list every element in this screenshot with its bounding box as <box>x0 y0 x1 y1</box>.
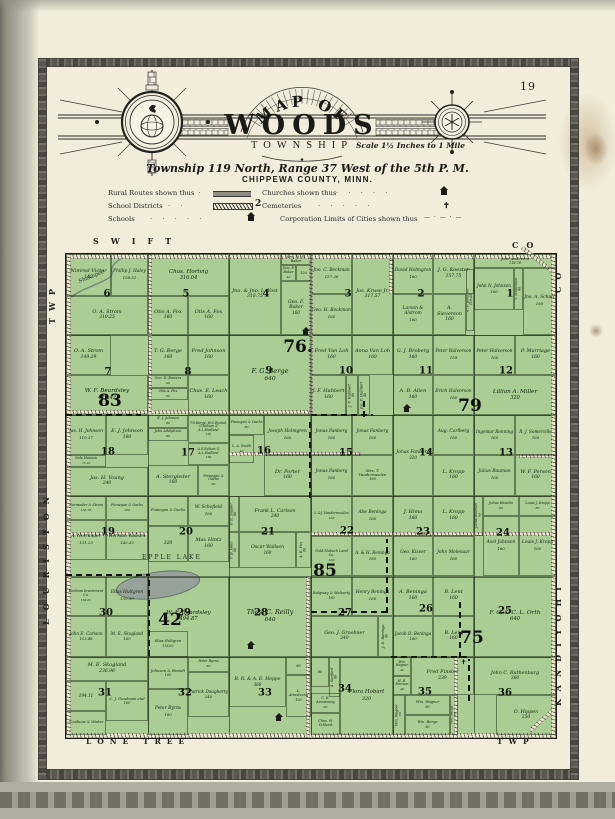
parcel: Chas. W. Schlevit <box>311 713 340 735</box>
parcel-owner: G. J. Broberg <box>397 349 430 355</box>
parcel-acres: 160 <box>369 557 376 561</box>
parcel-acres: 160 <box>124 509 130 512</box>
parcel-owner: R. J. Somerville <box>519 430 552 435</box>
parcel-owner: Chas. Hortvig <box>169 269 208 275</box>
parcel-acres: 160 <box>369 517 377 521</box>
parcel-owner: R. R. & A. E. Hoppe <box>234 677 280 682</box>
parcel: Jas. H. Young240 <box>66 467 148 496</box>
parcel-acres: 80 <box>399 713 402 717</box>
section-number: 23 <box>416 527 430 538</box>
parcel: Max Hintz160 <box>188 526 229 562</box>
school-district-number: 85 <box>313 561 337 581</box>
parcel: Johnson & Brandt160 <box>148 657 188 689</box>
parcel-acres: 160 <box>532 436 539 440</box>
parcel-owner: E. J. Johnson <box>111 429 143 435</box>
parcel: Wm. Wagner40 <box>393 657 411 676</box>
parcel-owner: A. & H. Beninga <box>355 551 390 556</box>
parcel-acres: 160 <box>329 517 335 520</box>
legend-schools-label: Schools <box>108 215 135 223</box>
school-district-symbol <box>213 203 253 210</box>
parcel-acres: 118.78 <box>509 262 521 266</box>
parcel-acres: 160 <box>328 597 334 601</box>
parcel-acres: 160 <box>536 302 544 306</box>
church-icon <box>303 331 308 335</box>
neighbor-township-west: LOURISTON <box>41 443 51 671</box>
parcel-owner: Frank L. Carlson <box>254 509 295 514</box>
parcel-owner: Larson & Alstrom <box>394 307 432 317</box>
parcel-acres: 119.37 <box>79 436 93 440</box>
parcel-acres: 160 <box>206 456 212 459</box>
section-number: 8 <box>185 367 192 378</box>
photo-edge-bottom <box>0 782 615 819</box>
parcel-acres: 40 <box>287 276 291 279</box>
parcel-owner: A. Beninga <box>399 590 427 596</box>
parcel: L. Kropp160 <box>433 455 474 496</box>
school-district-number: 76. <box>283 337 313 357</box>
parcel: J. F. Hubbert80 <box>346 375 358 415</box>
parcel: Henry Beninga160 <box>352 576 393 616</box>
parcel-owner: John E. Carlson <box>69 632 102 637</box>
parcel-acres: 143.32 <box>120 541 134 545</box>
parcel-acres: 320 <box>362 697 371 702</box>
parcel: Chas. E. Leach160 <box>188 375 229 415</box>
legend-rural-routes-label: Rural Routes shown thus <box>108 189 194 197</box>
parcel-acres: 160 <box>491 356 499 360</box>
parcel-owner: Chas. E. Leach <box>190 389 228 395</box>
parcel: 120 <box>296 265 311 281</box>
parcel: O. Hippen250 <box>496 695 556 735</box>
parcel-acres: 160 <box>284 436 292 440</box>
township-title: WOODS <box>150 110 454 141</box>
parcel-acres: 40 <box>400 669 404 672</box>
parcel-acres: 250 <box>522 716 530 721</box>
parcel: Jas. H. Johnson119.37 <box>66 415 106 455</box>
parcel-acres: 160 <box>449 637 458 642</box>
parcel-acres: 160 <box>449 597 458 602</box>
parcel-acres: 80 <box>454 713 457 717</box>
parcel-acres: 240 <box>205 695 212 699</box>
parcel: L. Armstrong160 <box>286 675 311 717</box>
parcel-acres: 316.04 <box>180 276 198 282</box>
parcel-owner: Patrick Dougherty <box>189 690 228 695</box>
school-district-number: 79 <box>458 396 482 416</box>
parcel: Geo. J. Groebner240 <box>311 616 378 657</box>
rural-route-symbol <box>213 191 251 197</box>
section-number: 31 <box>98 688 112 699</box>
parcel: Abe Beninga160 <box>352 496 393 536</box>
parcel-owner: A. Sieverson <box>434 306 465 317</box>
parcel: Dr. Porter160 <box>264 455 311 496</box>
parcel-acres: 80 <box>245 426 249 429</box>
parcel-acres: 160 <box>531 356 540 361</box>
parcel-owner: P. Marriage <box>521 349 550 355</box>
parcel-acres: 80 <box>479 514 482 518</box>
section-number: 13 <box>499 448 513 459</box>
parcel-acres: 160 <box>328 476 336 480</box>
parcel-acres: 160 <box>368 356 377 361</box>
parcel-owner: Lillian A. Miller <box>493 389 537 395</box>
parcel-owner: Fred Van Loh <box>314 349 348 355</box>
parcel: Jos. Kruse Jr.317.57 <box>352 254 393 335</box>
parcel: R. J. Somerville160 <box>515 415 556 455</box>
parcel: P. B. Hein80 <box>229 532 239 568</box>
neighbor-twp-west-label: TWP <box>47 272 57 334</box>
parcel-acres: 160 <box>164 713 172 717</box>
parcel-acres: 136.76 <box>81 509 92 512</box>
parcel: O. A. Strom310.25 <box>66 296 148 335</box>
county-line: CHIPPEWA COUNTY, MINN. <box>60 175 555 184</box>
parcel: Joseph Holmgren160 <box>264 415 311 455</box>
parcel-owner: John C. Ruthenburg <box>491 671 539 676</box>
parcel-acres: 160 <box>497 547 505 551</box>
parcel-acres: 160 <box>205 512 213 516</box>
parcel-acres: 160 <box>324 396 333 401</box>
parcel-acres: 194.11 <box>79 694 93 699</box>
parcel-acres: 80 <box>335 674 339 678</box>
parcel: Otis A. Fox80 <box>148 388 188 400</box>
section-number: 10 <box>339 366 353 377</box>
parcel-acres: 160 <box>169 481 178 486</box>
parcel-owner: T. G. Berge <box>154 349 182 355</box>
legend-cemeteries-label: Cemeteries <box>262 202 301 210</box>
parcel-owner: Jacob D. Beninga <box>395 632 431 637</box>
parcel-acres: 40 <box>519 286 523 290</box>
section-number: 33 <box>258 688 272 699</box>
parcel-owner: Benham Investment Co. <box>67 590 105 597</box>
parcel: Otis A. Fox160 <box>188 296 229 335</box>
section-number: 14 <box>419 448 433 459</box>
parcel-acres: 160 <box>369 478 376 482</box>
parcel-acres: 160 <box>449 476 458 481</box>
township-map: Shakopee EPPLE LAKE Nimrod Victor142Phil… <box>65 253 557 739</box>
parcel-acres: 160 <box>450 396 458 400</box>
parcel-acres: 160 <box>490 290 497 294</box>
school-district-number: 83 <box>98 391 122 411</box>
parcel-owner: Ingemar Ronning <box>476 430 513 435</box>
parcel-acres: 240 <box>103 482 112 487</box>
parcel: Thos. C. Reilly640 <box>229 576 311 657</box>
section-number: 21 <box>261 527 275 538</box>
parcel-acres: 160 <box>409 396 418 401</box>
parcel: Peter Byrns80 <box>188 657 229 672</box>
parcel: A. Norrander131.23 <box>66 520 106 560</box>
parcel-owner: T.G.Berge, H.C.Rystad, G.Nelson & A.L.He… <box>189 422 228 433</box>
legend-corporation-label: Corporation Limits of Cities shown thus <box>280 215 418 223</box>
parcel: T. G. Berge160 <box>148 335 188 375</box>
parcel: A. E. Fox80 <box>296 532 311 568</box>
parcel-acres: 80 <box>352 392 356 396</box>
parcel-owner: A. B. Allen <box>400 389 427 395</box>
parcel-acres: 160 <box>409 356 418 361</box>
parcel: 80 <box>286 657 311 675</box>
parcel: Aug. Carlberg160 <box>433 415 474 455</box>
parcel: Wm. Berge80 <box>405 715 450 735</box>
parcel-acres: 160 <box>369 436 377 440</box>
parcel: M. E. Skogland160 <box>106 616 148 657</box>
parcel-acres: 160 <box>491 436 498 440</box>
map-scale: Scale 1½ Inches to 1 Mile <box>356 141 465 150</box>
section-number: 16 <box>257 446 271 457</box>
school-district-number: 42 <box>158 610 182 630</box>
parcel: Jno. & Jno. L. Yost318.75 <box>229 254 281 335</box>
parcel-acres: 118.62 <box>162 645 173 649</box>
parcel-acres: 236.96 <box>99 670 115 675</box>
section-number: 22 <box>340 526 354 537</box>
parcel-acres: 80 <box>499 507 503 510</box>
corporation-limits-symbol: — · — · — <box>424 214 462 221</box>
parcel-acres: 40 <box>240 450 244 453</box>
parcel-acres: 160 <box>450 436 458 440</box>
parcel-acres: 160 <box>164 356 173 361</box>
parcel: Mrs. M. M. Baker <box>281 254 311 265</box>
scanned-plat-page: { "colors":{"page":"#f1edda","map_green"… <box>0 0 615 819</box>
section-number: 18 <box>101 447 115 458</box>
parcel-owner: C. E. Armstrong <box>312 697 339 704</box>
parcel: E. J. Johnson80 <box>148 415 188 428</box>
parcel-owner: Goodnow & Winter <box>69 721 104 725</box>
parcel-acres: 160 <box>283 476 292 481</box>
parcel-acres: 160 <box>369 597 377 601</box>
parcel-acres: 80 <box>304 547 308 551</box>
church-icon <box>276 717 281 721</box>
parcel-acres: 160 <box>123 436 132 441</box>
parcel: Geo. D. Bowers40 <box>148 375 188 388</box>
legend-leader: · · <box>168 202 186 210</box>
school-district-symbol-number: 2 <box>255 199 261 209</box>
parcel-acres: 40 <box>166 382 170 385</box>
parcel-acres: 40 <box>364 392 368 396</box>
parcel-acres: 160 <box>409 557 417 561</box>
parcel: Mrs. T. Vandermeulen160 <box>352 455 393 496</box>
parcel: John C. Ruthenburg360 <box>474 657 556 695</box>
parcel-acres: 318.75 <box>247 295 263 300</box>
parcel-acres: 317.57 <box>365 295 381 300</box>
parcel: F. E. Snyder80 <box>229 496 239 532</box>
parcel-owner: Flora Hobart <box>349 690 385 696</box>
parcel-owner: Geo. F. Baker <box>282 267 295 274</box>
parcel-owner: Fred Finster <box>427 670 459 676</box>
parcel-acres: 160 <box>449 517 458 522</box>
parcel: Finnegan & Oachs80 <box>229 415 264 435</box>
parcel-acres: 80 <box>234 511 238 515</box>
parcel: Julius Hanslin80 <box>483 496 519 516</box>
parcel: Lillian A. Miller320 <box>474 375 556 415</box>
parcel: Finnegan & Oachs <box>148 496 188 526</box>
parcel: A. Stergleder160 <box>148 465 198 496</box>
parcel-acres: 160 <box>204 396 213 401</box>
parcel: Larson & Alstrom160 <box>393 294 433 335</box>
parcel: Flora Hobart320 <box>340 657 393 735</box>
parcel-owner: B. Lent <box>444 590 462 596</box>
section-number: 35 <box>418 687 432 698</box>
parcel-acres: 640 <box>510 617 520 623</box>
parcel: A. B. Allen160 <box>393 375 433 415</box>
parcel: Geo. H. Beckman160 <box>311 294 352 335</box>
parcel-acres: 240 <box>340 637 348 642</box>
parcel-acres: 80 <box>425 706 429 710</box>
parcel: A. Sieverson160 <box>433 294 466 335</box>
parcel: Louis J. Kropp80 <box>519 496 556 516</box>
parcel-acres: 158.51 <box>123 276 137 280</box>
parcel: R. R. & A. E. Hoppe360 <box>229 657 286 707</box>
parcel-owner: Finnegan & Oachs <box>199 475 228 482</box>
parcel-owner: Max Hintz <box>195 538 221 544</box>
section-number: 7 <box>105 367 112 378</box>
parcel-acres: 310.25 <box>99 316 115 321</box>
section-number: 11 <box>419 366 433 377</box>
church-icon <box>248 645 253 649</box>
parcel-acres: 160 <box>164 316 173 321</box>
parcel-owner: H. E. Peerson <box>394 680 410 687</box>
parcel: P. Marriage160 <box>515 335 556 375</box>
parcel: Jacob D. Beninga160 <box>393 616 433 657</box>
parcel-acres: 80 <box>207 665 211 668</box>
parcel-owner: Chas. W. Schlevit <box>312 720 339 727</box>
parcel: Goodnow & Winter <box>66 711 106 735</box>
legend-churches-label: Churches shown thus <box>262 189 336 197</box>
parcel: Finnegan & Oachs80 <box>198 465 229 496</box>
parcel: C. J. Goodnow etal160 <box>106 681 148 721</box>
parcel-owner: L. Armstrong <box>287 690 310 698</box>
parcel: Finnegan & Oachs160 <box>106 496 148 520</box>
parcel-owner: O. Hippen <box>514 710 539 715</box>
section-number: 25 <box>498 606 512 617</box>
section-number: 26 <box>419 604 433 615</box>
parcel-owner: Mrs. M. M. Baker <box>282 256 310 264</box>
parcel: W. Schofield160 <box>188 496 229 526</box>
frame-bottom <box>38 769 579 780</box>
parcel: David Holmgren160 <box>393 254 433 294</box>
parcel-acres: 160 <box>534 547 542 551</box>
parcel: Jonas Fanberg160 <box>311 455 352 496</box>
parcel: T. Wilkinson40 <box>514 268 523 310</box>
parcel-owner: Gold Slabach Land Co. <box>312 550 351 557</box>
legend-leader: · · · · · <box>150 215 205 223</box>
section-number: 1 <box>507 289 514 300</box>
parcel-acres: 160 <box>204 545 213 550</box>
parcel-acres: 640 <box>264 376 275 383</box>
parcel: C. E. Armstrong80 <box>311 693 340 713</box>
school-symbol-icon <box>248 216 254 221</box>
parcel-owner: J. F. Hubbert <box>312 389 344 395</box>
parcel-acres: 80 <box>212 483 216 486</box>
parcel: Norrander & Strom136.76 <box>66 496 106 520</box>
parcel: Wm. Wagner80 <box>393 695 405 735</box>
parcel-acres: 153.48 <box>79 637 92 641</box>
section-number: 2 <box>418 289 425 300</box>
parcel-acres: 160 <box>409 517 418 522</box>
parcel-acres: 75.10 <box>82 462 91 465</box>
parcel: Axel Johnson160 <box>483 516 519 576</box>
parcel: Geo. Kisver160 <box>393 536 433 576</box>
parcel-owner: Anna Van Loh <box>355 349 390 355</box>
parcel-acres: 240 <box>271 515 279 520</box>
parcel-acres: 160 <box>328 436 336 440</box>
parcel-acres: 160 <box>123 637 130 641</box>
parcel-owner: M. E. Skogland <box>88 663 127 669</box>
parcel-acres: 80 <box>318 671 323 675</box>
parcel-acres: 40 <box>400 688 404 691</box>
parcel-acres: 142 <box>84 276 93 281</box>
parcel-acres: 160 <box>292 311 300 316</box>
parcel: John Adolphson80 <box>148 428 188 441</box>
parcel: J. F. Hubbert160 <box>311 375 346 415</box>
parcel: B. Lent160 <box>433 576 474 616</box>
parcel-owner: L. Kropp <box>442 510 464 516</box>
parcel: F. O. & C. L. Orth640 <box>474 576 556 657</box>
section-number: 36 <box>498 688 512 699</box>
section-number: 24 <box>496 528 510 539</box>
section-number: 20 <box>179 527 193 538</box>
parcel-acres: 160 <box>165 674 172 678</box>
parcel-acres: 320 <box>164 542 173 547</box>
parcel-acres: 160 <box>409 318 417 322</box>
page-stain <box>589 324 603 338</box>
parcel-acres: 160 <box>328 315 336 319</box>
parcel: Peter Halvorson159 <box>433 335 474 375</box>
school-district-number: 75 <box>460 628 484 648</box>
parcel: W. F. Person160 <box>515 455 556 496</box>
parcel: Wm. Benge80 <box>450 695 458 735</box>
parcel: L. A. Smith40 <box>229 435 254 463</box>
parcel: John Anderson118.78 <box>474 254 556 268</box>
parcel: Julius Bauman160 <box>474 455 515 496</box>
section-number: 17 <box>181 448 195 459</box>
parcel-owner: J. G. Koester <box>438 268 469 274</box>
parcel-owner: Oscar Wallsen <box>251 545 284 550</box>
section-number: 9 <box>266 366 273 377</box>
parcel-owner: Finnegan & Oachs <box>151 509 185 513</box>
parcel-acres: 159 <box>450 356 458 360</box>
parcel-acres: 160 <box>491 476 499 480</box>
section-number: 12 <box>499 366 513 377</box>
neighbor-county-north: SWIFT <box>93 236 183 246</box>
parcel-acres: 160 <box>409 275 417 279</box>
parcel-acres: 80 <box>166 395 170 398</box>
parcel: Anna Van Loh160 <box>352 335 393 375</box>
parcel-acres: 40 <box>386 634 390 638</box>
parcel-acres: 157.36 <box>325 275 339 279</box>
parcel-owner: Mrs. T. Vandermeulen <box>353 469 392 477</box>
legend-leader: · · <box>186 189 204 197</box>
parcel-acres: 159.90 <box>120 597 134 601</box>
parcel-acres: 80 <box>536 507 540 510</box>
parcel: A. P. Johnson119.04 <box>466 269 474 331</box>
parcel-acres: 160 <box>204 356 213 361</box>
parcel-acres: 160 <box>206 433 212 436</box>
parcel-acres: 320 <box>510 396 520 402</box>
parcel-acres: 80 <box>425 726 429 730</box>
parcel-acres: 80 <box>166 422 170 425</box>
section-number: 34 <box>338 684 352 695</box>
parcel: Patrick Dougherty240 <box>188 672 229 717</box>
legend-school-districts-label: School Districts <box>108 202 163 210</box>
parcel-owner: Fred Johnson <box>192 349 226 355</box>
parcel: J. D. Beninga40 <box>378 616 393 657</box>
parcel-acres: 160 <box>445 318 454 323</box>
parcel-acres: 80 <box>166 435 170 438</box>
parcel-acres: 320 <box>409 456 417 461</box>
parcel-owner: Wm. Wagner <box>394 661 410 668</box>
parcel-acres: 120 <box>300 272 307 276</box>
parcel: Geo. F. Baker40 <box>281 265 296 281</box>
section-number: 30 <box>99 608 113 619</box>
cemetery-icon: ✝ <box>461 660 466 666</box>
parcel-acres: 160 <box>124 702 131 706</box>
section-number: 28 <box>254 608 268 619</box>
cemetery-symbol-icon: ✝ <box>443 201 450 209</box>
section-number: 32 <box>178 688 192 699</box>
